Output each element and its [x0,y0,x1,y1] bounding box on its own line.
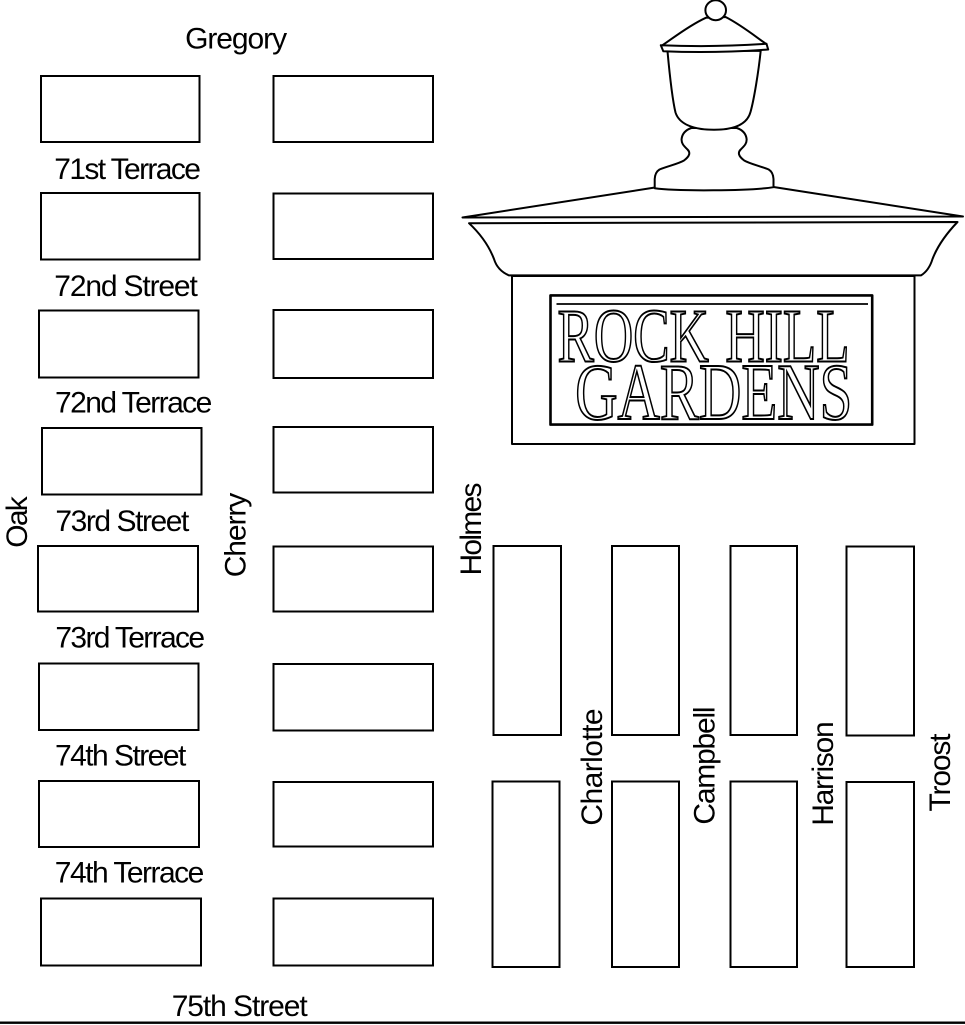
svg-text:71st Terrace: 71st Terrace [54,153,201,186]
svg-text:Charlotte: Charlotte [576,708,609,825]
svg-text:Gregory: Gregory [185,22,287,55]
svg-text:75th Street: 75th Street [172,990,309,1023]
svg-text:Harrison: Harrison [807,721,840,826]
svg-text:Troost: Troost [924,733,957,812]
svg-text:GARDENS: GARDENS [575,349,852,437]
svg-text:Oak: Oak [1,495,34,548]
svg-text:Holmes: Holmes [455,483,488,576]
svg-text:73rd Terrace: 73rd Terrace [55,622,205,655]
svg-text:74th Terrace: 74th Terrace [55,857,205,890]
svg-text:74th Street: 74th Street [55,740,187,773]
svg-text:72nd Street: 72nd Street [54,270,198,303]
svg-text:73rd Street: 73rd Street [55,505,190,538]
svg-text:Cherry: Cherry [220,493,253,578]
svg-text:Campbell: Campbell [689,706,722,824]
svg-text:72nd Terrace: 72nd Terrace [55,387,212,420]
